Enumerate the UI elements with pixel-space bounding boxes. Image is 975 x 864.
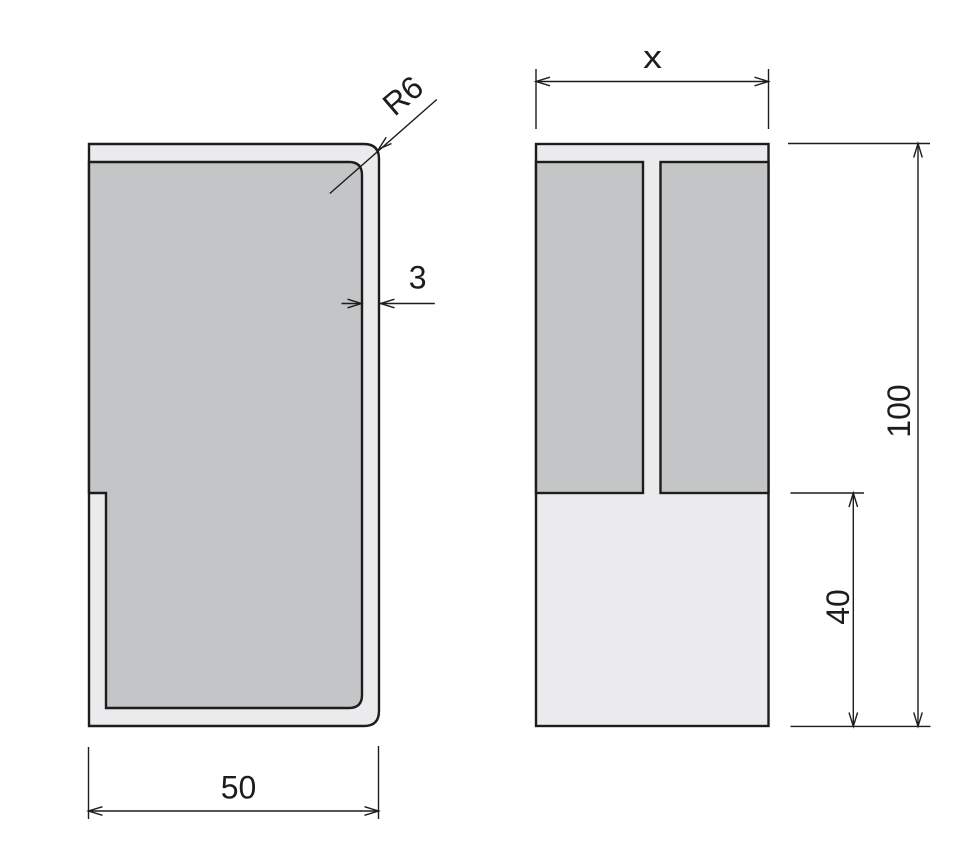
svg-text:R6: R6 [376,69,430,123]
svg-text:50: 50 [221,770,257,806]
svg-text:40: 40 [820,589,856,625]
svg-text:x: x [643,40,662,76]
svg-text:3: 3 [409,260,427,296]
svg-text:100: 100 [881,384,917,437]
